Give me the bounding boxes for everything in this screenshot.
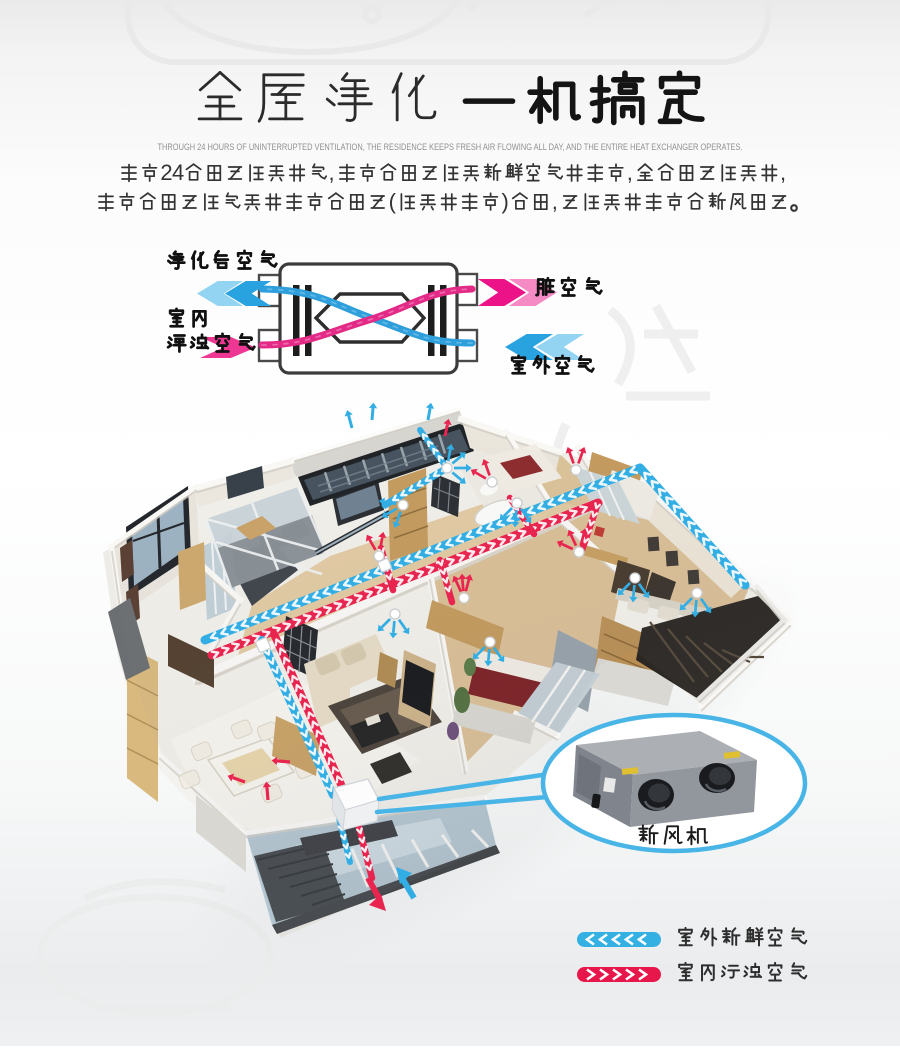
svg-text:,: , [627, 160, 633, 185]
svg-text:(: ( [389, 189, 397, 214]
svg-text:,: , [329, 160, 335, 185]
svg-text:4: 4 [172, 160, 184, 185]
svg-text:THROUGH 24 HOURS OF UNINTERRUP: THROUGH 24 HOURS OF UNINTERRUPTED VENTIL… [158, 142, 743, 152]
svg-text:,: , [552, 189, 558, 214]
svg-text:): ) [502, 189, 509, 214]
svg-text:2: 2 [160, 160, 172, 185]
svg-text:,: , [780, 160, 786, 185]
